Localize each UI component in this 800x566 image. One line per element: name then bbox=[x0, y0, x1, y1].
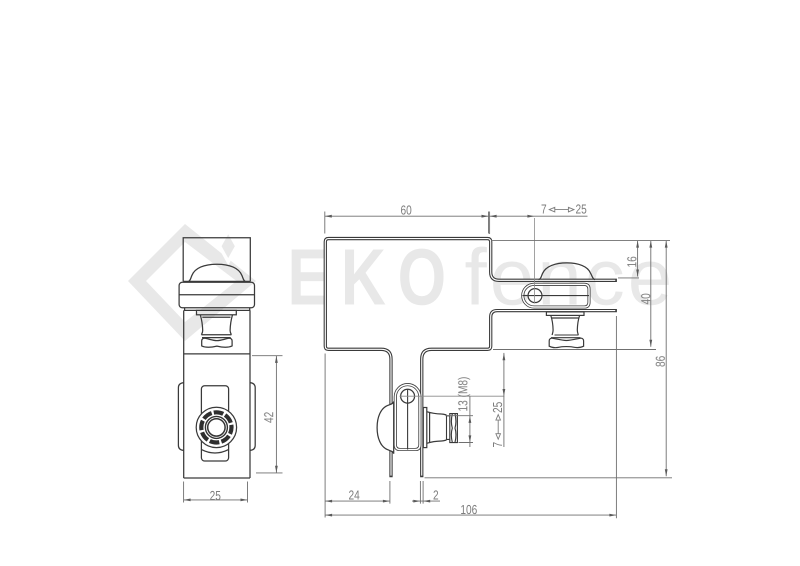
svg-text:7: 7 bbox=[490, 442, 505, 448]
svg-text:40: 40 bbox=[638, 293, 653, 304]
svg-text:16: 16 bbox=[624, 256, 639, 267]
svg-text:60: 60 bbox=[401, 202, 412, 217]
svg-text:13 (M8): 13 (M8) bbox=[455, 377, 470, 412]
svg-text:25: 25 bbox=[490, 402, 505, 413]
svg-text:86: 86 bbox=[653, 356, 668, 367]
svg-text:25: 25 bbox=[575, 201, 586, 216]
svg-text:25: 25 bbox=[210, 488, 221, 503]
svg-text:24: 24 bbox=[349, 488, 360, 503]
svg-text:42: 42 bbox=[261, 412, 276, 423]
svg-text:2: 2 bbox=[433, 488, 439, 503]
svg-text:106: 106 bbox=[460, 502, 477, 517]
svg-text:7: 7 bbox=[541, 201, 547, 216]
svg-text:EKO: EKO bbox=[288, 232, 458, 321]
